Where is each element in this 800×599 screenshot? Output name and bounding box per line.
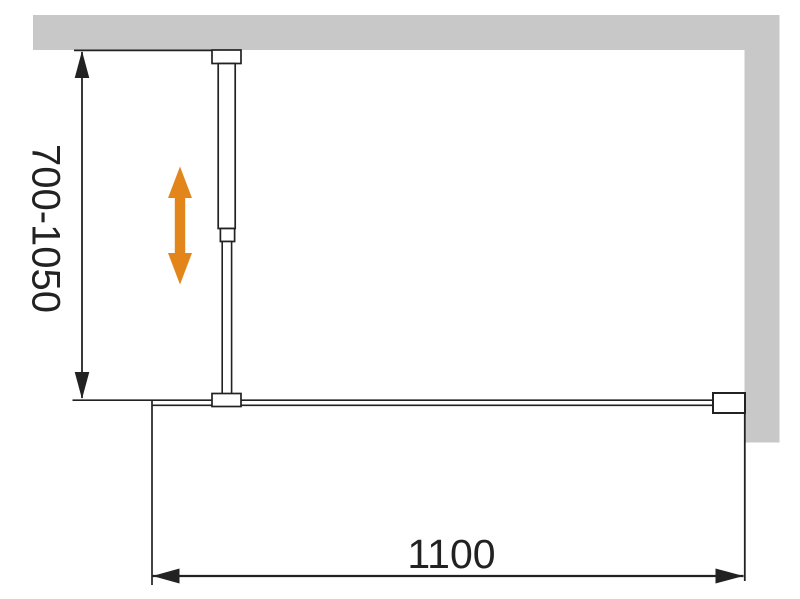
- svg-text:1100: 1100: [407, 531, 495, 577]
- svg-text:700-1050: 700-1050: [24, 144, 68, 313]
